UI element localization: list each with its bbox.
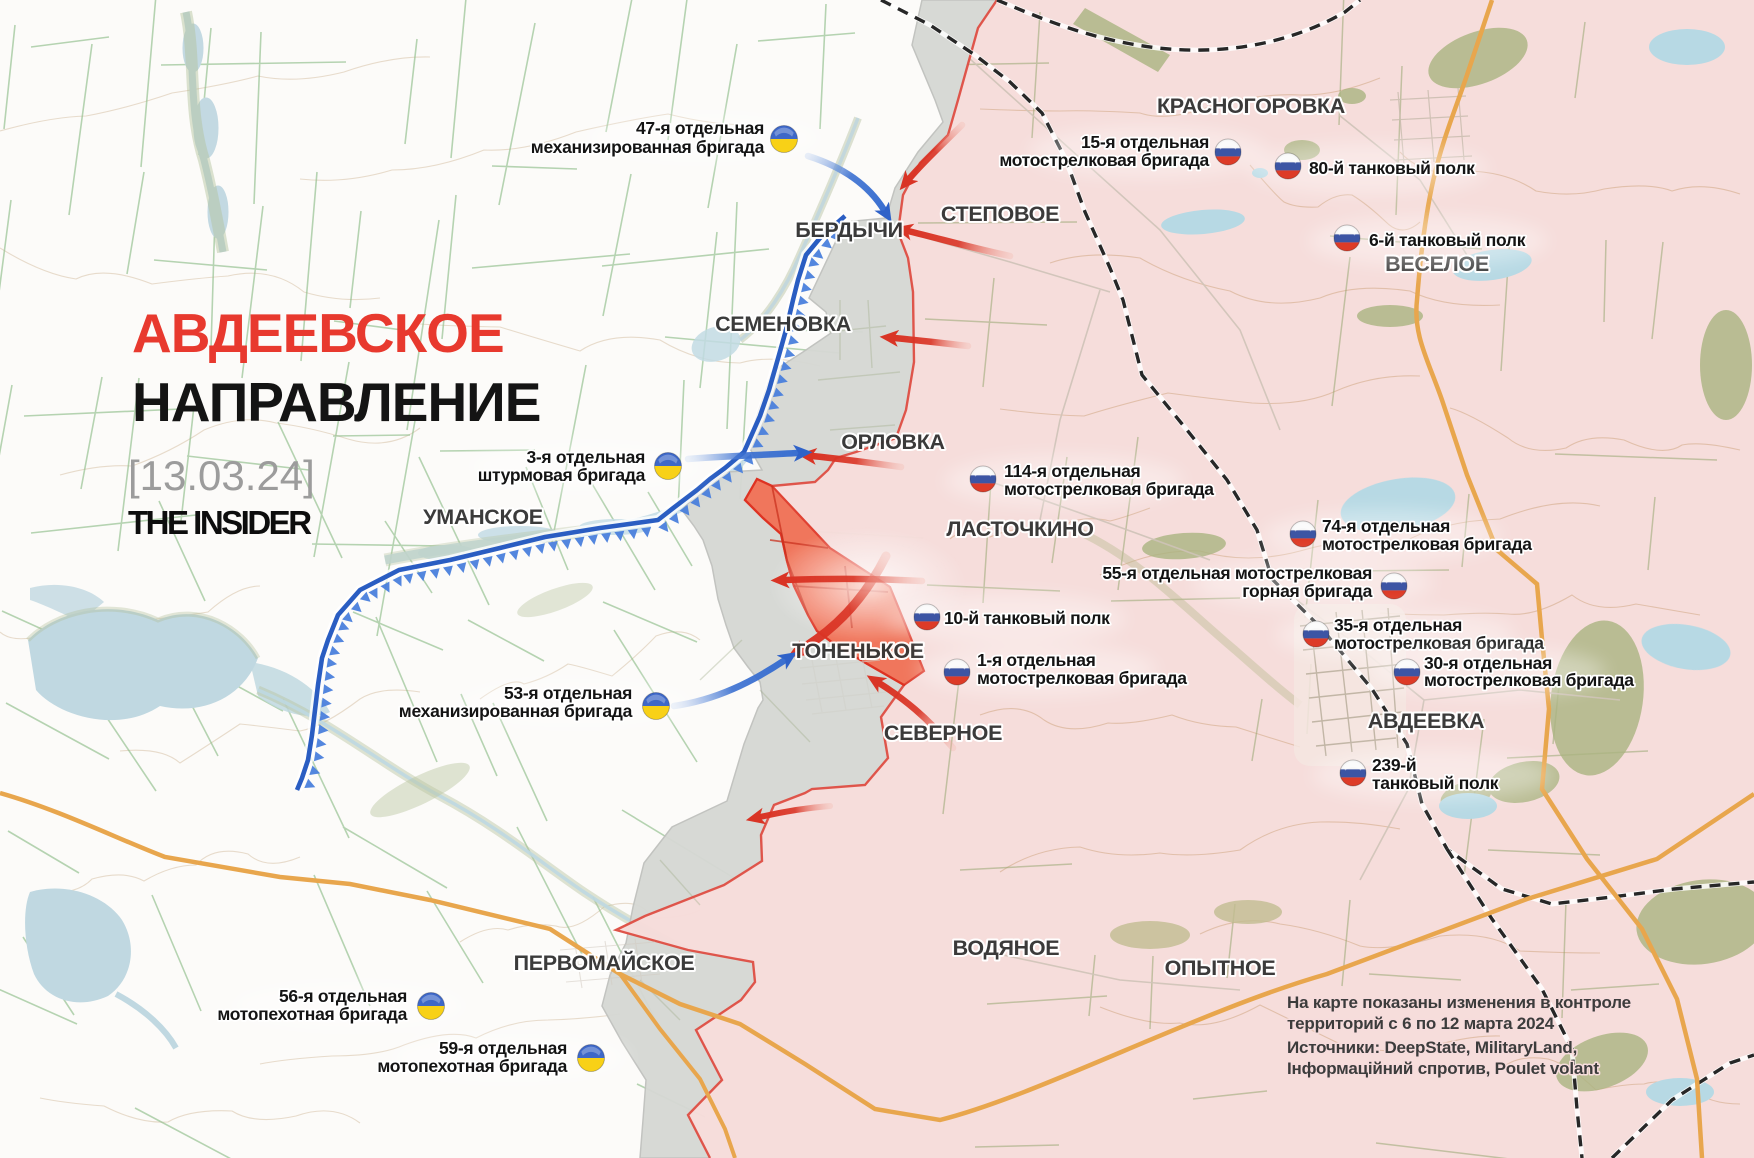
svg-text:59-я отдельная: 59-я отдельная: [439, 1038, 567, 1058]
svg-text:ЛАСТОЧКИНО: ЛАСТОЧКИНО: [946, 517, 1093, 541]
svg-text:56-я отдельная: 56-я отдельная: [279, 986, 407, 1006]
svg-text:штурмовая бригада: штурмовая бригада: [478, 465, 646, 485]
svg-text:механизированная бригада: механизированная бригада: [399, 701, 633, 721]
svg-text:СТЕПОВОЕ: СТЕПОВОЕ: [941, 202, 1059, 226]
svg-text:АВДЕЕВСКОЕ: АВДЕЕВСКОЕ: [132, 302, 504, 364]
svg-text:15-я отдельная: 15-я отдельная: [1081, 132, 1209, 152]
svg-text:35-я отдельная: 35-я отдельная: [1334, 615, 1462, 635]
svg-text:53-я отдельная: 53-я отдельная: [504, 683, 632, 703]
svg-text:ОПЫТНОЕ: ОПЫТНОЕ: [1165, 956, 1276, 980]
svg-text:мотострелковая бригада: мотострелковая бригада: [1322, 534, 1532, 554]
svg-text:КРАСНОГОРОВКА: КРАСНОГОРОВКА: [1157, 94, 1345, 118]
svg-text:мотопехотная бригада: мотопехотная бригада: [217, 1004, 407, 1024]
svg-text:территорий с 6 по 12 марта 202: территорий с 6 по 12 марта 2024: [1287, 1014, 1555, 1033]
svg-text:мотострелковая бригада: мотострелковая бригада: [977, 668, 1187, 688]
svg-text:6-й танковый полк: 6-й танковый полк: [1369, 230, 1526, 250]
svg-text:239-й: 239-й: [1372, 755, 1416, 775]
svg-text:мотострелковая бригада: мотострелковая бригада: [1004, 479, 1214, 499]
svg-text:1-я отдельная: 1-я отдельная: [977, 650, 1096, 670]
svg-text:БЕРДЫЧИ: БЕРДЫЧИ: [795, 218, 903, 242]
svg-text:ВОДЯНОЕ: ВОДЯНОЕ: [953, 936, 1060, 960]
svg-text:механизированная бригада: механизированная бригада: [531, 137, 765, 157]
svg-text:[13.03.24]: [13.03.24]: [128, 452, 315, 499]
svg-text:ТОНЕНЬКОЕ: ТОНЕНЬКОЕ: [792, 639, 924, 663]
svg-text:10-й танковый полк: 10-й танковый полк: [944, 608, 1110, 628]
svg-text:АВДЕЕВКА: АВДЕЕВКА: [1368, 709, 1485, 733]
svg-text:мотопехотная бригада: мотопехотная бригада: [377, 1056, 567, 1076]
svg-text:НАПРАВЛЕНИЕ: НАПРАВЛЕНИЕ: [132, 371, 540, 433]
svg-text:На карте показаны изменения в: На карте показаны изменения в контроле: [1287, 993, 1631, 1012]
svg-text:ОРЛОВКА: ОРЛОВКА: [841, 430, 945, 454]
svg-text:Інформаційний спротив, Poulet: Інформаційний спротив, Poulet volant: [1287, 1059, 1599, 1078]
svg-text:ПЕРВОМАЙСКОЕ: ПЕРВОМАЙСКОЕ: [514, 950, 695, 975]
svg-text:Источники: DeepState, Military: Источники: DeepState, MilitaryLand,: [1287, 1038, 1577, 1057]
svg-text:горная бригада: горная бригада: [1242, 581, 1372, 601]
svg-text:мотострелковая бригада: мотострелковая бригада: [999, 150, 1209, 170]
svg-text:47-я отдельная: 47-я отдельная: [636, 118, 764, 138]
svg-text:мотострелковая бригада: мотострелковая бригада: [1424, 670, 1634, 690]
svg-text:55-я отдельная мотострелковая: 55-я отдельная мотострелковая: [1102, 563, 1372, 583]
svg-text:74-я отдельная: 74-я отдельная: [1322, 516, 1450, 536]
svg-text:114-я отдельная: 114-я отдельная: [1004, 461, 1140, 481]
svg-text:80-й танковый полк: 80-й танковый полк: [1309, 158, 1475, 178]
svg-text:СЕМЕНОВКА: СЕМЕНОВКА: [715, 312, 851, 336]
svg-text:СЕВЕРНОЕ: СЕВЕРНОЕ: [884, 721, 1002, 745]
svg-text:THE INSIDER: THE INSIDER: [128, 504, 312, 541]
svg-text:3-я отдельная: 3-я отдельная: [526, 447, 645, 467]
svg-text:танковый полк: танковый полк: [1372, 773, 1499, 793]
svg-text:УМАНСКОЕ: УМАНСКОЕ: [423, 505, 543, 529]
